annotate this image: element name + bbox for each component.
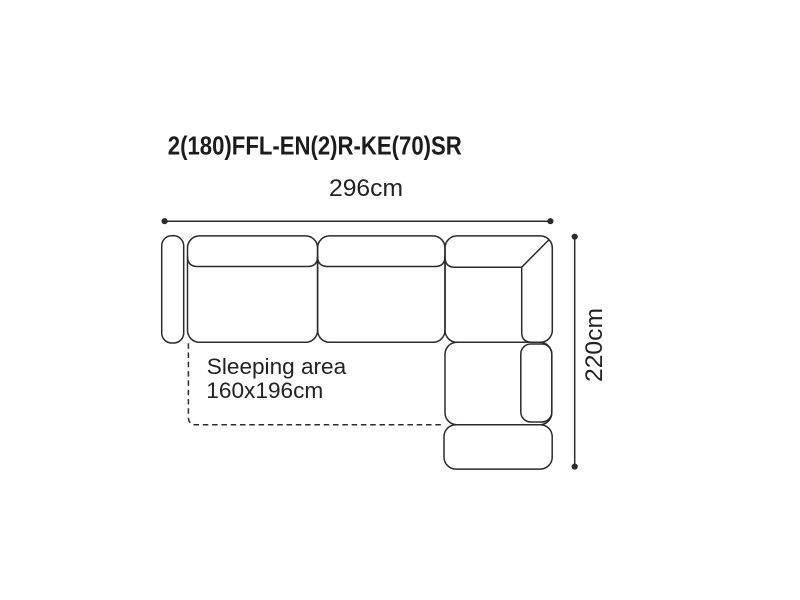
svg-text:296cm: 296cm [329,175,403,202]
svg-text:220cm: 220cm [581,308,608,382]
svg-text:Sleeping area: Sleeping area [207,354,347,379]
svg-text:160x196cm: 160x196cm [206,378,323,403]
svg-text:2(180)FFL-EN(2)R-KE(70)SR: 2(180)FFL-EN(2)R-KE(70)SR [168,133,462,161]
